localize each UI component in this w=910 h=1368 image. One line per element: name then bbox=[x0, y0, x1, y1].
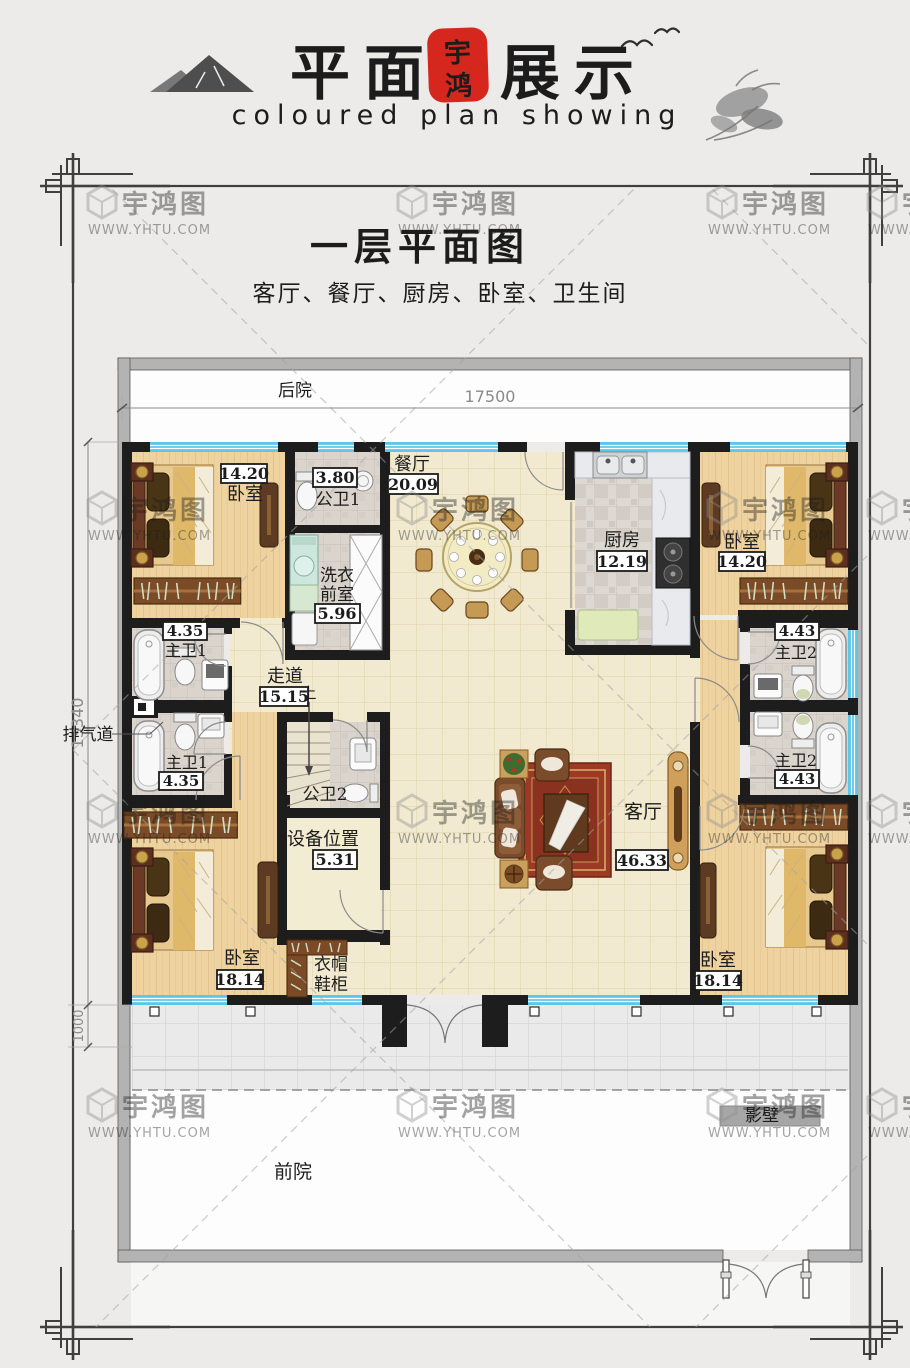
svg-text:走道: 走道 bbox=[267, 666, 303, 687]
dim-width: 17500 bbox=[465, 387, 516, 406]
svg-text:主卫1: 主卫1 bbox=[165, 641, 207, 660]
room-label-hallway: 走道 15.15 bbox=[259, 666, 309, 706]
svg-text:14.20: 14.20 bbox=[717, 552, 767, 571]
svg-text:14.20: 14.20 bbox=[219, 464, 269, 483]
svg-text:主卫2: 主卫2 bbox=[775, 643, 817, 662]
svg-text:洗衣: 洗衣 bbox=[320, 566, 354, 586]
room-label-master-bath1b: 主卫1 4.35 bbox=[159, 753, 208, 790]
svg-text:4.43: 4.43 bbox=[779, 770, 816, 788]
room-label-bedroom-br: 卧室 18.14 bbox=[693, 950, 743, 990]
svg-text:主卫2: 主卫2 bbox=[775, 751, 817, 770]
svg-text:卧室: 卧室 bbox=[227, 484, 263, 505]
svg-text:客厅: 客厅 bbox=[624, 801, 662, 823]
room-label-public-bath2: 公卫2 bbox=[303, 785, 348, 805]
seal-char-bottom: 鸿 bbox=[445, 71, 473, 103]
svg-text:18.14: 18.14 bbox=[215, 970, 265, 989]
header: 平面 宇 鸿 展示 coloured plan showing bbox=[150, 27, 784, 140]
svg-text:5.31: 5.31 bbox=[316, 850, 355, 869]
svg-text:餐厅: 餐厅 bbox=[394, 454, 430, 475]
svg-text:主卫1: 主卫1 bbox=[166, 753, 208, 772]
brand-seal: 宇 鸿 bbox=[427, 27, 490, 103]
svg-text:卧室: 卧室 bbox=[700, 950, 736, 971]
brand-title-left: 平面 bbox=[290, 39, 438, 109]
svg-text:卧室: 卧室 bbox=[224, 948, 260, 969]
svg-text:5.96: 5.96 bbox=[318, 604, 357, 623]
room-label-kitchen: 厨房 12.19 bbox=[597, 530, 647, 571]
floor-plan-poster: 宇鸿图 WWW.YHTU.COM 平面 宇 鸿 展示 coloured plan… bbox=[0, 0, 910, 1368]
svg-text:18.14: 18.14 bbox=[693, 971, 743, 990]
svg-text:4.35: 4.35 bbox=[163, 772, 200, 790]
svg-text:15.15: 15.15 bbox=[259, 687, 309, 706]
svg-text:4.35: 4.35 bbox=[167, 622, 204, 640]
plan-canvas: 宇鸿图 WWW.YHTU.COM 平面 宇 鸿 展示 coloured plan… bbox=[0, 0, 910, 1368]
svg-text:3.80: 3.80 bbox=[316, 468, 355, 487]
room-label-cloakroom: 衣帽 鞋柜 bbox=[314, 955, 348, 995]
room-label-master-bath1a: 4.35 主卫1 bbox=[163, 622, 207, 660]
svg-text:46.33: 46.33 bbox=[617, 851, 667, 870]
brand-title-right: 展示 bbox=[500, 39, 648, 109]
ink-plant-icon bbox=[706, 70, 784, 140]
dim-porch: 1000 bbox=[72, 1009, 87, 1042]
svg-text:4.43: 4.43 bbox=[779, 622, 816, 640]
seal-char-top: 宇 bbox=[444, 38, 472, 70]
room-label-laundry: 洗衣 前室 5.96 bbox=[315, 566, 360, 623]
svg-text:厨房: 厨房 bbox=[604, 530, 640, 551]
room-label-master-bath2b: 主卫2 4.43 bbox=[775, 751, 819, 788]
label-backyard: 后院 bbox=[278, 381, 312, 401]
room-label-bedroom-tl: 14.20 卧室 bbox=[219, 464, 269, 505]
svg-text:设备位置: 设备位置 bbox=[287, 829, 359, 850]
label-frontyard: 前院 bbox=[274, 1161, 312, 1183]
svg-text:鞋柜: 鞋柜 bbox=[314, 975, 348, 995]
svg-text:12.19: 12.19 bbox=[597, 552, 647, 571]
label-exhaust-duct: 排气道 bbox=[63, 725, 114, 745]
header-tagline: coloured plan showing bbox=[232, 100, 683, 131]
svg-text:衣帽: 衣帽 bbox=[314, 955, 348, 975]
svg-text:公卫1: 公卫1 bbox=[316, 490, 361, 510]
svg-text:前室: 前室 bbox=[320, 585, 354, 605]
